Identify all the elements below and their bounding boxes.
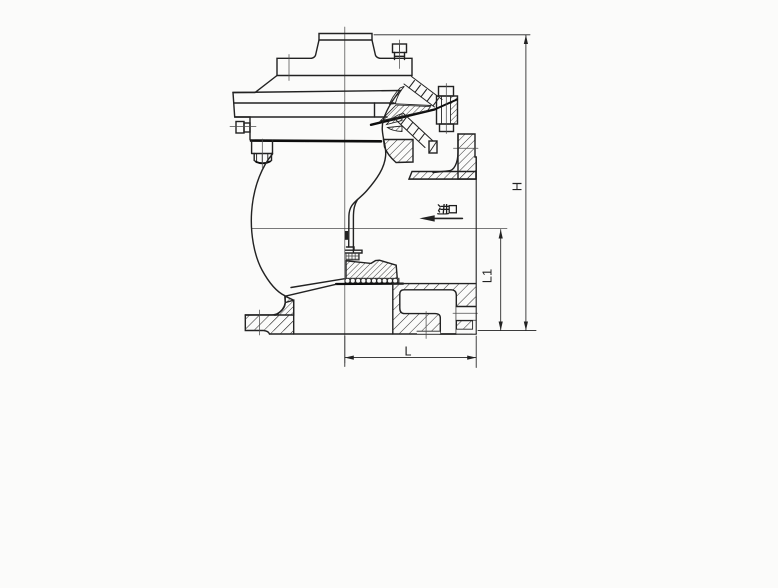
svg-text:L: L	[405, 345, 412, 359]
svg-text:H: H	[509, 182, 524, 191]
svg-text:L1: L1	[479, 269, 494, 283]
